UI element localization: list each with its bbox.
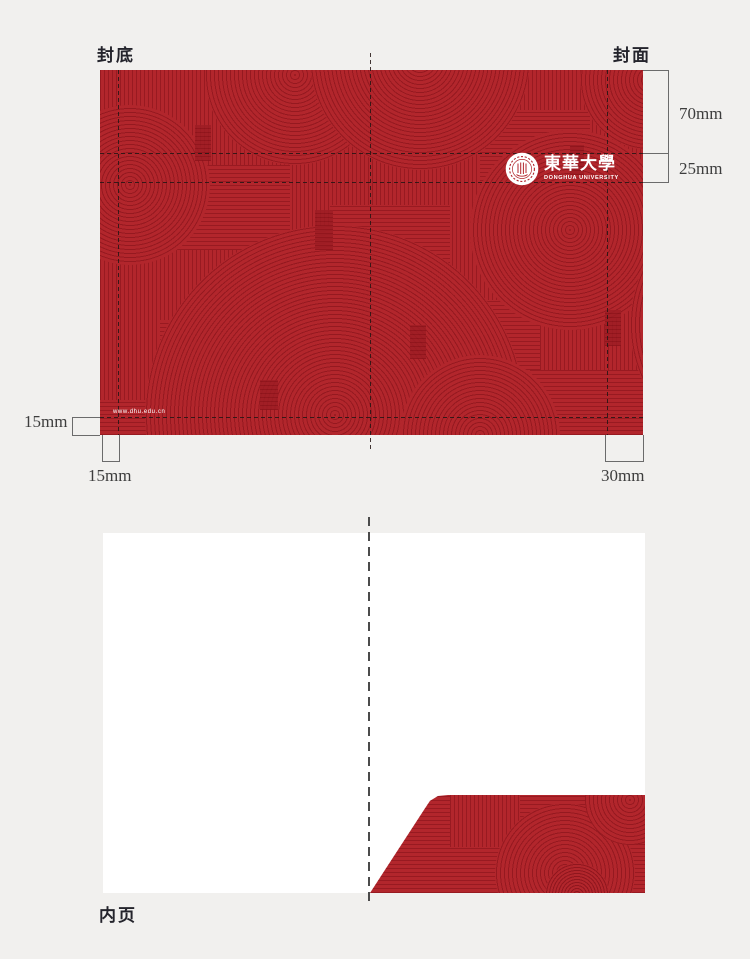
measurement-left-15mm: 15mm: [24, 412, 67, 432]
university-name-cn: 東華大學: [544, 154, 643, 173]
inner-page-label: 内页: [99, 901, 137, 926]
pattern-dark-block: [195, 125, 211, 161]
bracket-line: [605, 461, 644, 462]
cover-spread-artwork: 東華大學 DONGHUA UNIVERSITY www.dhu.edu.cn: [100, 70, 643, 435]
front-cover-label: 封面: [613, 41, 651, 66]
bracket-line: [643, 182, 669, 183]
university-name-en: DONGHUA UNIVERSITY: [544, 174, 619, 180]
measurement-bottom-30mm: 30mm: [601, 466, 644, 486]
guide-left-margin-line: [118, 70, 119, 435]
measurement-bottom-15mm: 15mm: [88, 466, 131, 486]
bracket-line: [102, 435, 103, 462]
university-seal-icon: [505, 152, 539, 186]
bracket-line: [643, 153, 669, 154]
measurement-25mm: 25mm: [679, 159, 722, 179]
guide-bottom-margin-line: [100, 417, 643, 418]
measurement-70mm: 70mm: [679, 104, 722, 124]
bracket-line: [72, 435, 100, 436]
pattern-dark-block: [260, 380, 278, 410]
bracket-line: [72, 417, 73, 436]
bracket-line: [72, 417, 100, 418]
university-logo: 東華大學 DONGHUA UNIVERSITY: [505, 150, 617, 188]
bracket-line: [668, 70, 669, 183]
bracket-line: [119, 435, 120, 462]
inner-page-fold-line: [368, 517, 370, 907]
bracket-line: [102, 461, 120, 462]
pattern-dark-block: [410, 325, 426, 359]
bracket-line: [643, 435, 644, 462]
back-cover-label: 封底: [97, 41, 135, 66]
website-url: www.dhu.edu.cn: [113, 408, 165, 415]
bracket-line: [605, 435, 606, 462]
folder-design-spec-sheet: 封底 封面: [0, 0, 750, 959]
cover-center-fold-line: [370, 53, 371, 452]
guide-right-margin-line: [607, 70, 608, 435]
bracket-line: [643, 70, 669, 71]
pattern-dark-block: [315, 210, 333, 250]
